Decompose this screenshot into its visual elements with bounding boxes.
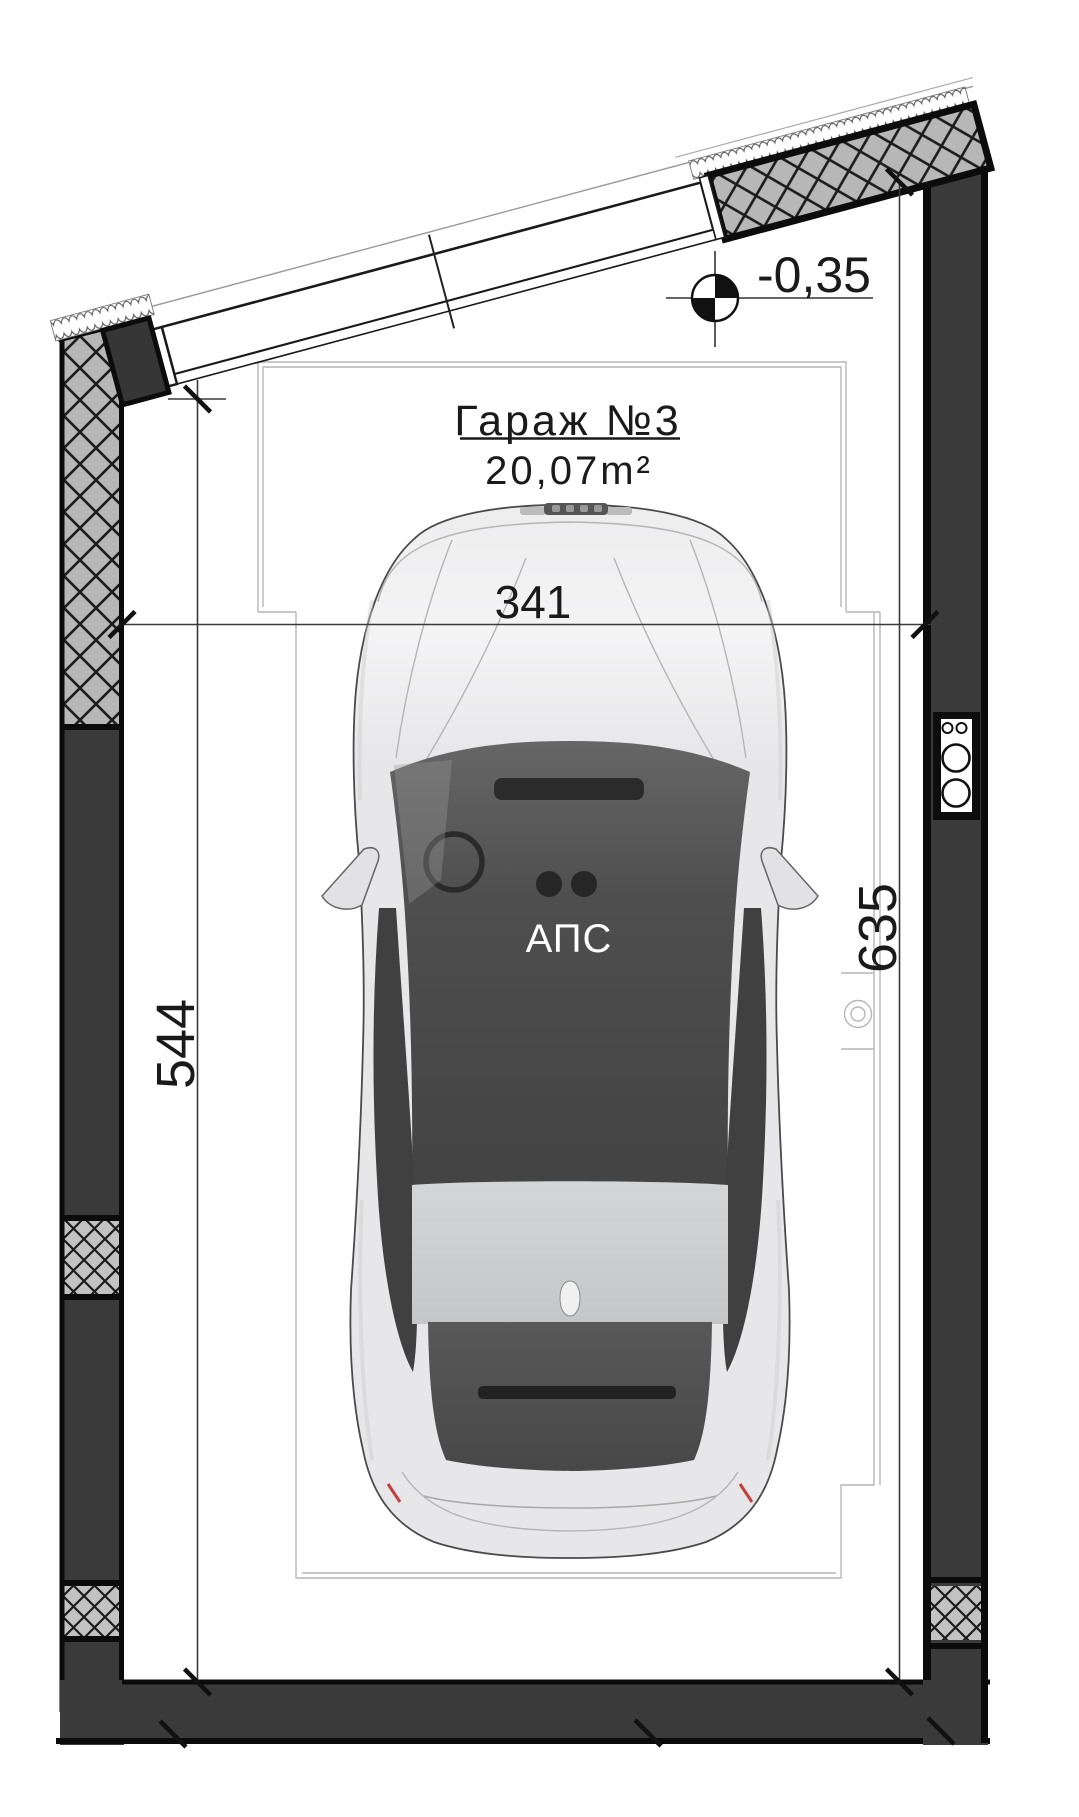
svg-text:-0,35: -0,35 — [757, 247, 871, 303]
svg-text:544: 544 — [146, 999, 206, 1089]
svg-text:341: 341 — [495, 576, 572, 628]
svg-text:635: 635 — [848, 883, 908, 973]
svg-text:20,07m²: 20,07m² — [485, 449, 653, 493]
svg-text:АПС: АПС — [526, 917, 613, 961]
